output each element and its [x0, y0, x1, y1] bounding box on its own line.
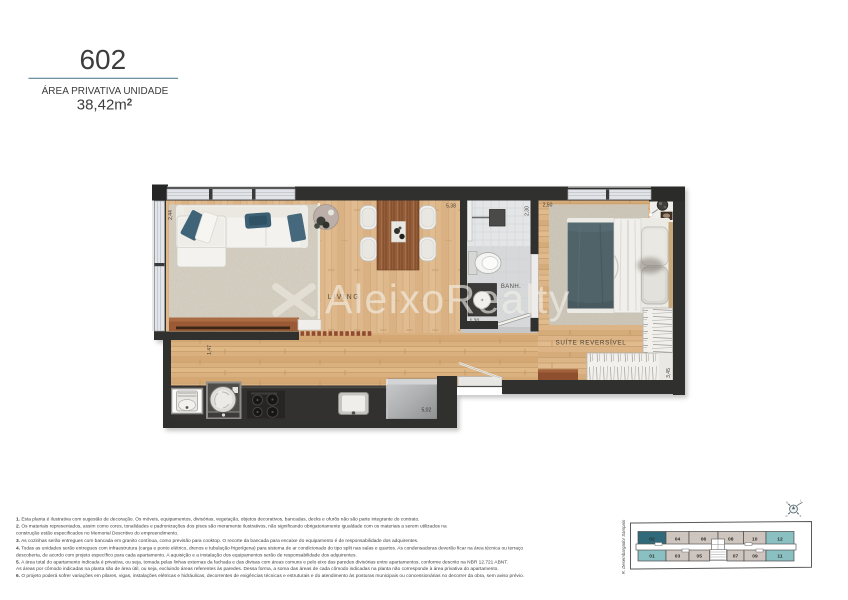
svg-text:04: 04: [675, 537, 681, 543]
svg-text:11: 11: [777, 554, 782, 560]
svg-text:construção estão especificados: construção estão especificados no Memori…: [16, 531, 178, 537]
svg-text:N: N: [786, 501, 788, 505]
svg-text:09: 09: [752, 554, 758, 560]
svg-text:5,02: 5,02: [422, 408, 432, 414]
svg-text:1,47: 1,47: [207, 345, 213, 355]
svg-text:S: S: [800, 514, 802, 518]
svg-text:38,42m2: 38,42m2: [77, 97, 133, 114]
svg-text:06: 06: [701, 537, 707, 543]
svg-text:2,44: 2,44: [168, 210, 174, 220]
svg-text:5. A área total do apartamento: 5. A área total do apartamento indicada …: [16, 559, 508, 565]
svg-text:02: 02: [649, 537, 655, 543]
svg-text:2. Os materiais representados,: 2. Os materiais representados, assim com…: [16, 524, 447, 530]
svg-text:602: 602: [79, 44, 126, 75]
svg-text:descoberta, de acordo com proj: descoberta, de acordo com projeto especí…: [16, 553, 357, 559]
svg-text:As áreas por cômodo indicadas: As áreas por cômodo indicadas na planta …: [16, 566, 499, 572]
svg-text:08: 08: [728, 537, 734, 543]
svg-text:01: 01: [649, 554, 655, 560]
svg-text:3,45: 3,45: [666, 368, 672, 378]
svg-text:4. Todas as unidades serão ent: 4. Todas as unidades serão entregues com…: [16, 546, 523, 552]
svg-text:6. O projeto poderá sofrer var: 6. O projeto poderá sofrer variações em …: [16, 573, 524, 579]
svg-text:R. Desembargador Sampaio: R. Desembargador Sampaio: [621, 519, 626, 574]
svg-text:O: O: [786, 514, 788, 518]
svg-text:AleixoRealty: AleixoRealty: [325, 276, 571, 322]
svg-text:03: 03: [675, 554, 681, 560]
svg-text:05: 05: [697, 554, 703, 560]
svg-text:10: 10: [752, 537, 758, 543]
svg-text:07: 07: [733, 554, 739, 560]
svg-text:SUÍTE REVERSÍVEL: SUÍTE REVERSÍVEL: [555, 338, 626, 347]
svg-text:2,30: 2,30: [525, 206, 531, 216]
svg-text:1. Esta planta é ilustrativa c: 1. Esta planta é ilustrativa com sugestã…: [16, 516, 419, 522]
svg-text:2,50: 2,50: [543, 203, 553, 209]
svg-text:5,38: 5,38: [446, 204, 456, 210]
svg-text:3. As cozinhas serão entregues: 3. As cozinhas serão entregues com banca…: [16, 538, 418, 544]
svg-text:12: 12: [777, 537, 783, 543]
svg-text:ÁREA PRIVATIVA UNIDADE: ÁREA PRIVATIVA UNIDADE: [42, 84, 169, 97]
